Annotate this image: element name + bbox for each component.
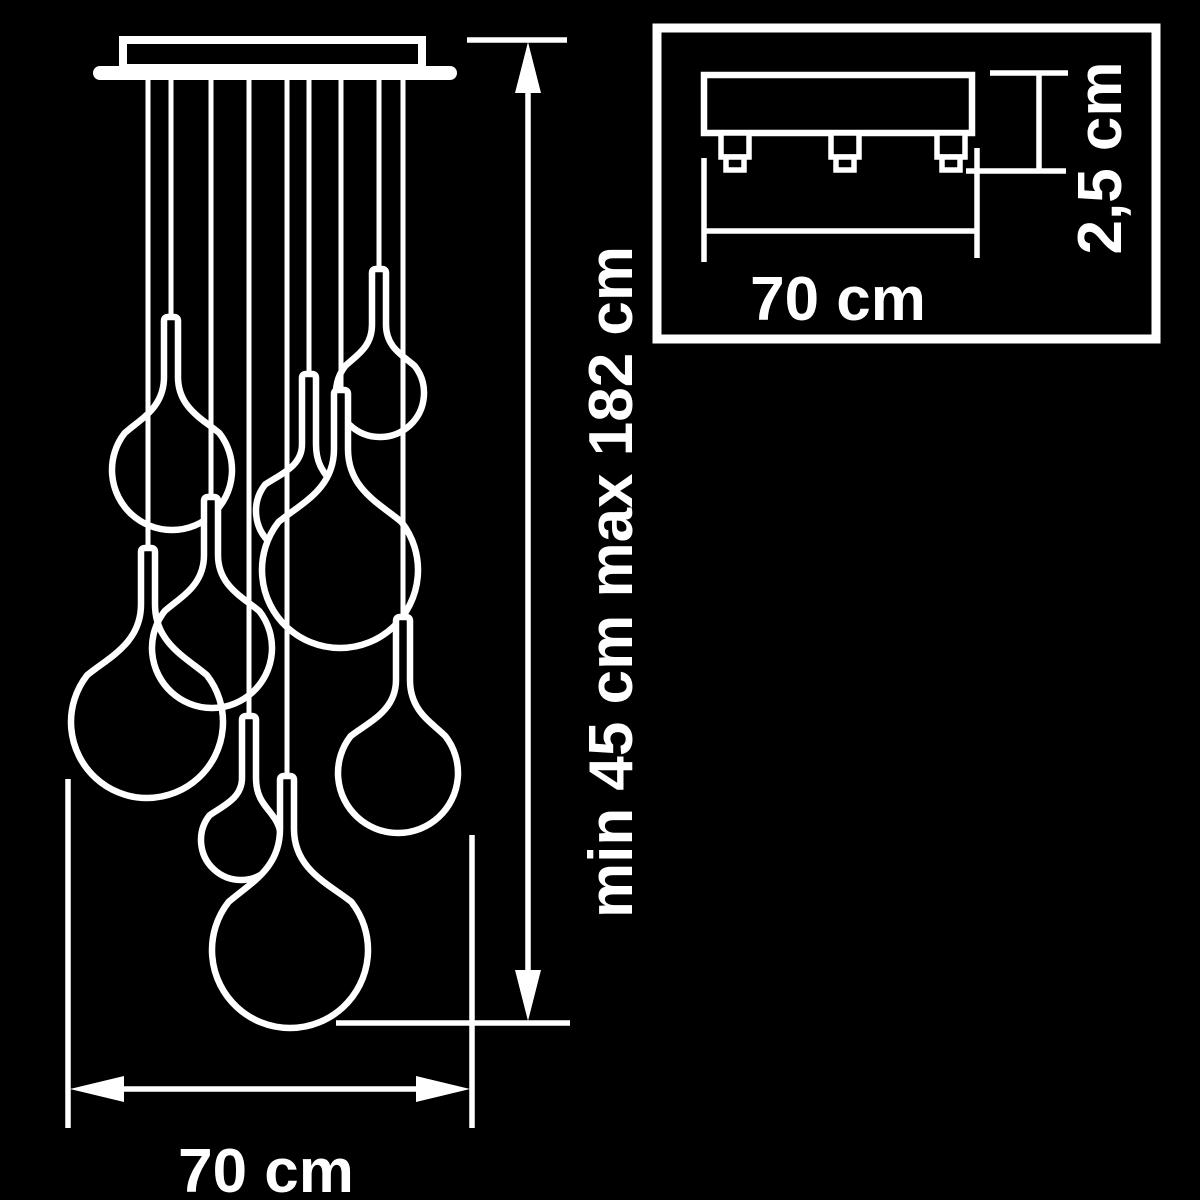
ceiling-canopy <box>93 40 457 80</box>
canopy-box <box>123 40 422 68</box>
inset-clip-3-body <box>937 133 965 157</box>
inset-clip-2-foot <box>836 157 854 170</box>
height-dimension-label: min 45 cm max 182 cm <box>577 246 646 918</box>
inset-height-label: 2,5 cm <box>1066 61 1135 254</box>
inset-clip-1-body <box>721 133 749 157</box>
canopy-plate <box>93 66 457 80</box>
chandelier-dimension-diagram: min 45 cm max 182 cm 70 cm 70 cm 2,5 cm <box>0 0 1200 1200</box>
mount-detail-inset: 70 cm 2,5 cm <box>657 28 1156 339</box>
inset-clip-2-body <box>831 133 859 157</box>
inset-clip-1-foot <box>726 157 744 170</box>
inset-width-label: 70 cm <box>750 265 926 334</box>
inset-clip-3-foot <box>942 157 960 170</box>
width-dimension-label: 70 cm <box>178 1137 354 1200</box>
inset-mount-plate <box>704 75 972 133</box>
